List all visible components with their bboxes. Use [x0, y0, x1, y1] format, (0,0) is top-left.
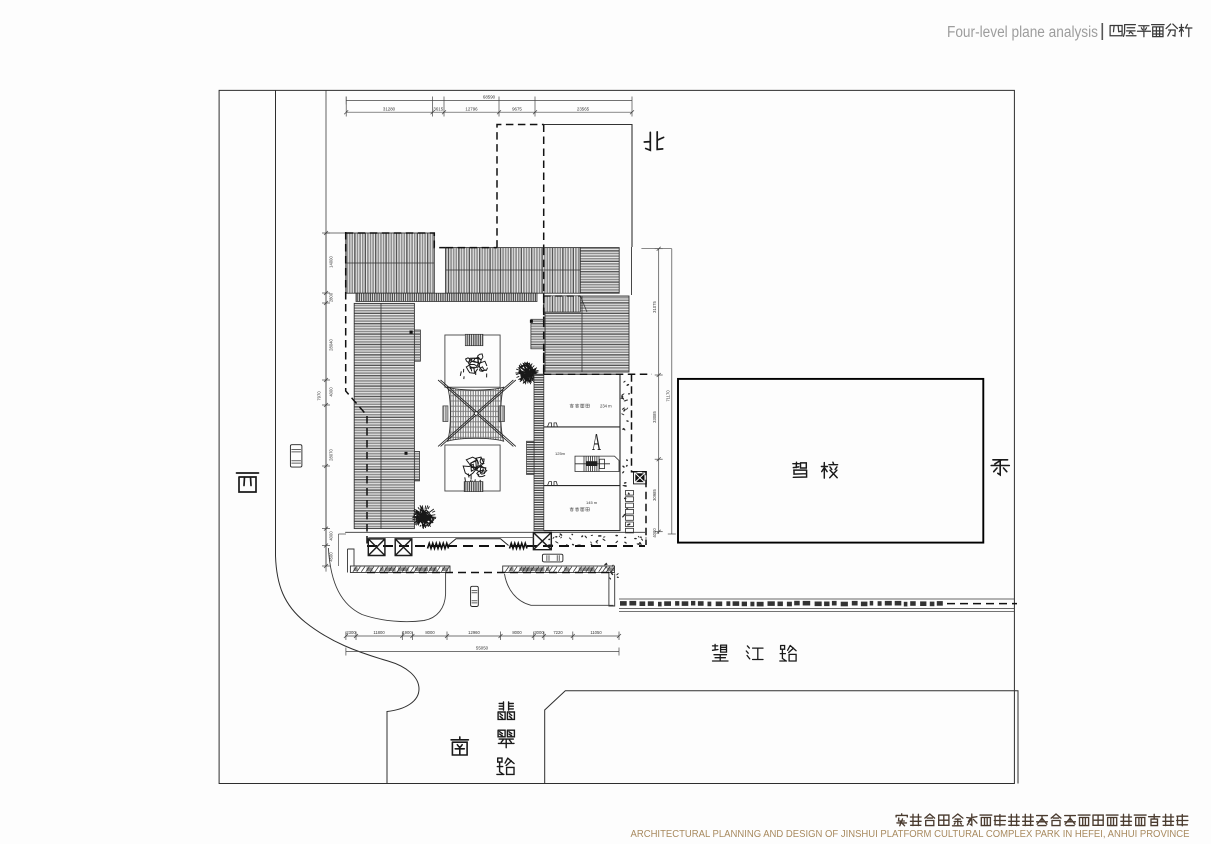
svg-text:234 m: 234 m: [600, 404, 612, 409]
svg-text:12960: 12960: [468, 630, 480, 635]
svg-text:4000: 4000: [652, 528, 657, 538]
svg-text:12796: 12796: [465, 106, 478, 111]
svg-text:11800: 11800: [373, 630, 385, 635]
svg-text:4000: 4000: [329, 387, 334, 397]
svg-text:3615: 3615: [433, 106, 443, 111]
svg-text:A: A: [592, 430, 601, 456]
svg-text:8000: 8000: [425, 630, 435, 635]
svg-text:4000: 4000: [329, 531, 334, 541]
svg-text:145 m: 145 m: [586, 500, 598, 505]
svg-text:28040: 28040: [329, 339, 334, 351]
svg-text:2300: 2300: [346, 630, 356, 635]
svg-text:7970: 7970: [317, 391, 322, 401]
svg-text:Four-level plane analysis: Four-level plane analysis: [947, 24, 1098, 41]
svg-text:31280: 31280: [383, 106, 396, 111]
svg-text:28070: 28070: [329, 449, 334, 461]
svg-text:2800: 2800: [329, 292, 334, 302]
svg-text:55050: 55050: [476, 645, 489, 650]
svg-text:8000: 8000: [512, 630, 522, 635]
svg-text:9675: 9675: [512, 106, 522, 111]
svg-text:23565: 23565: [577, 106, 590, 111]
svg-text:7220: 7220: [553, 630, 563, 635]
svg-text:71170: 71170: [665, 390, 670, 402]
svg-text:30985: 30985: [652, 489, 657, 501]
svg-text:68590: 68590: [483, 95, 496, 100]
svg-text:14000: 14000: [329, 256, 334, 268]
svg-text:ARCHITECTURAL PLANNING AND DES: ARCHITECTURAL PLANNING AND DESIGN OF JIN…: [631, 829, 1190, 840]
svg-text:31075: 31075: [652, 301, 657, 313]
svg-text:3000: 3000: [534, 630, 544, 635]
svg-text:125m: 125m: [555, 451, 566, 456]
svg-text:33085: 33085: [652, 411, 657, 423]
svg-text:1900: 1900: [402, 630, 412, 635]
svg-text:11050: 11050: [590, 630, 602, 635]
